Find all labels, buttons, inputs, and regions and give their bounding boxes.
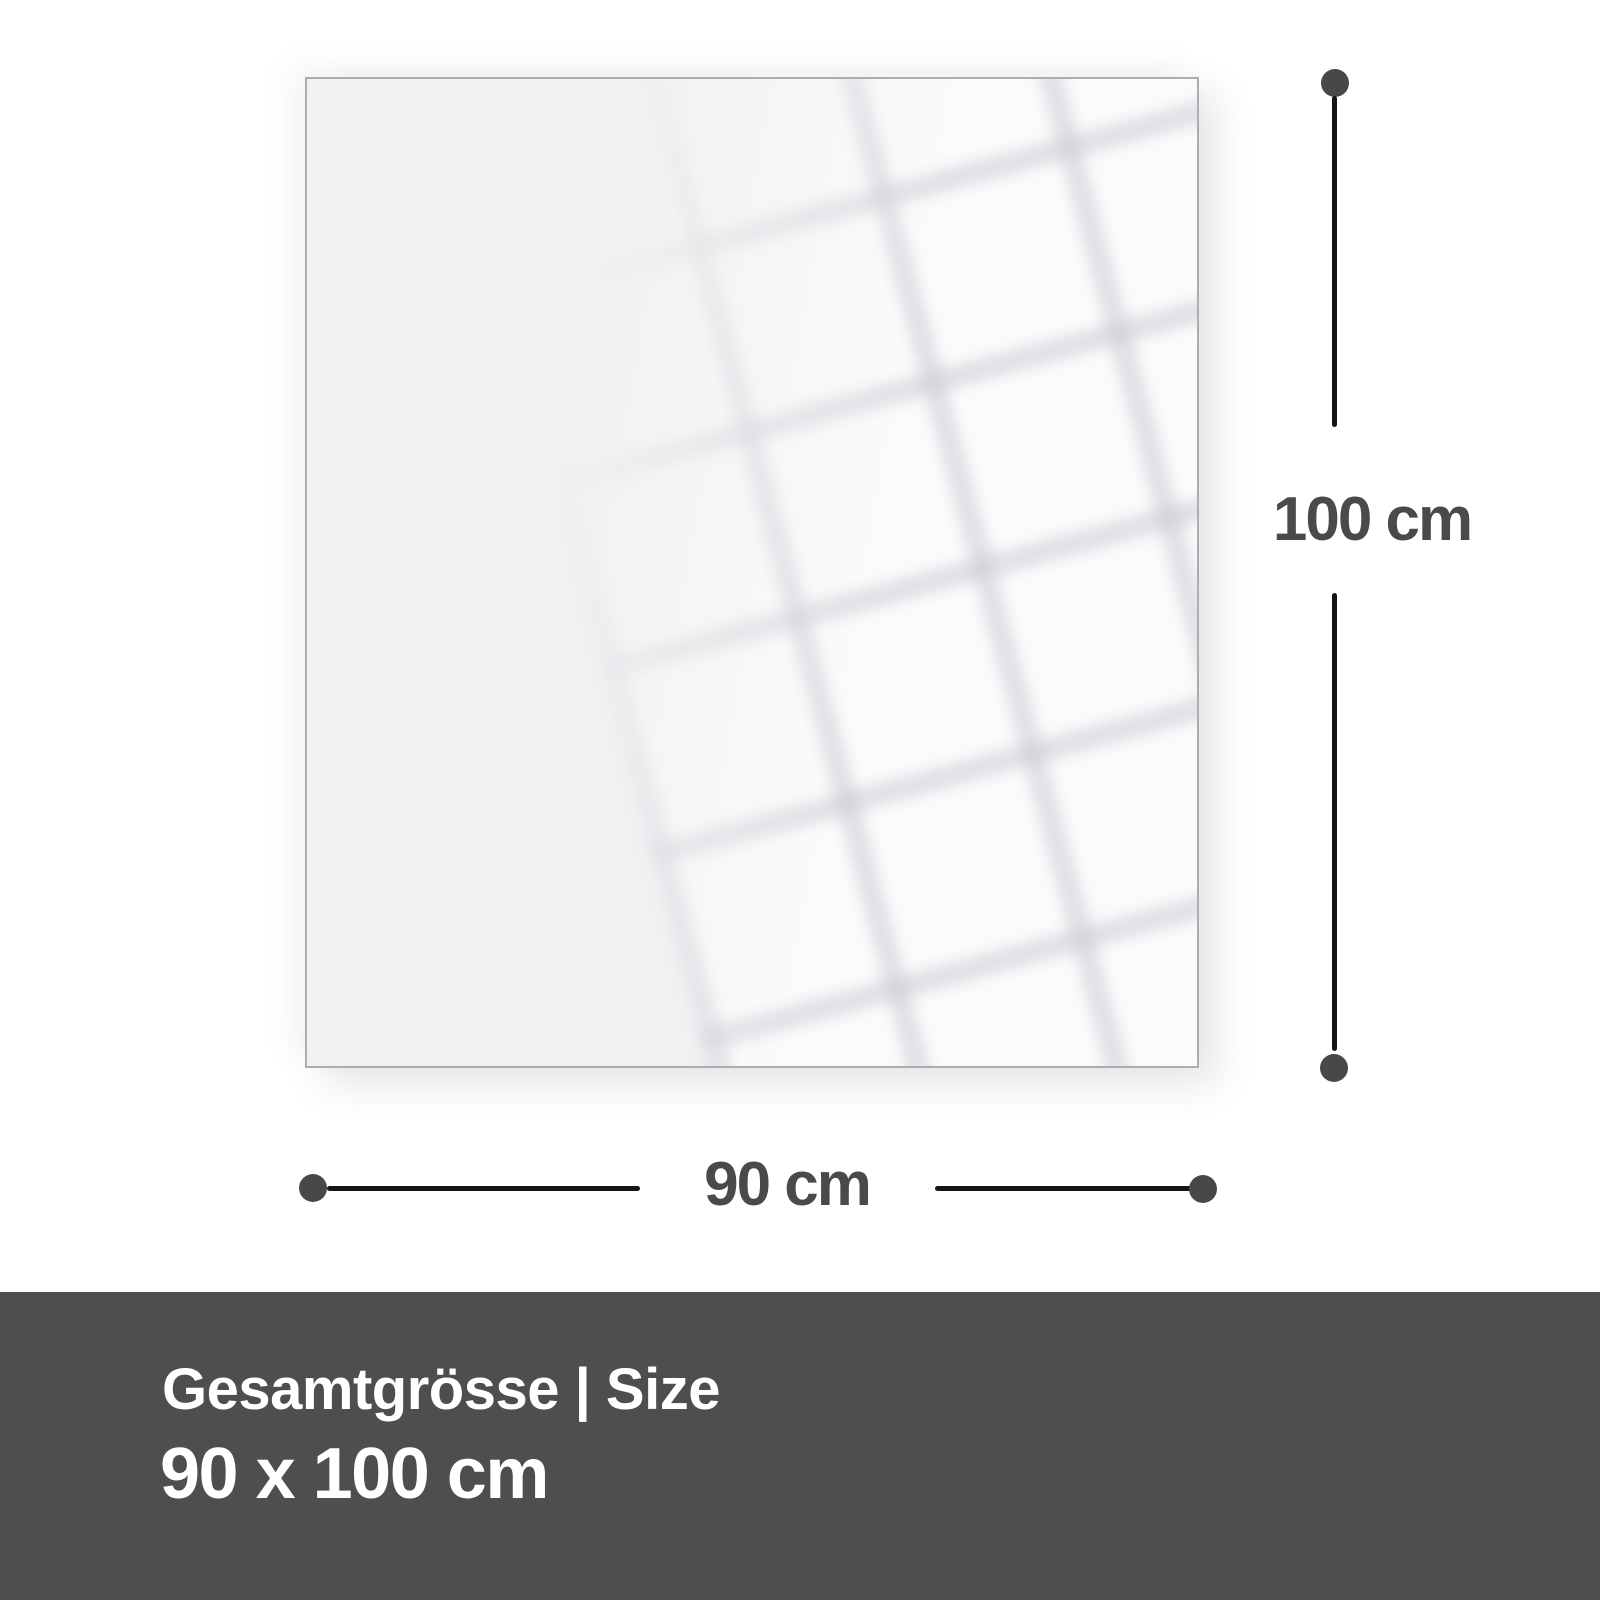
size-footer: Gesamtgrösse | Size 90 x 100 cm	[0, 1292, 1600, 1600]
footer-title: Gesamtgrösse | Size	[162, 1361, 720, 1419]
vertical-dimension-line-lower	[1332, 593, 1337, 1051]
dimension-endpoint-dot	[299, 1174, 327, 1202]
vertical-dimension-label: 100 cm	[1273, 489, 1471, 551]
horizontal-dimension-line-left	[327, 1186, 640, 1191]
footer-size-value: 90 x 100 cm	[160, 1438, 548, 1510]
vertical-dimension-line-upper	[1332, 96, 1337, 427]
horizontal-dimension-line-right	[935, 1186, 1192, 1191]
glass-reflection-fade	[305, 77, 1199, 1068]
dimension-endpoint-dot	[1189, 1175, 1217, 1203]
dimension-endpoint-dot	[1320, 1054, 1348, 1082]
horizontal-dimension-label: 90 cm	[704, 1154, 870, 1216]
product-size-diagram: 100 cm 90 cm Gesamtgrösse | Size 90 x 10…	[0, 0, 1600, 1600]
dimension-endpoint-dot	[1321, 69, 1349, 97]
glass-panel	[305, 77, 1199, 1068]
